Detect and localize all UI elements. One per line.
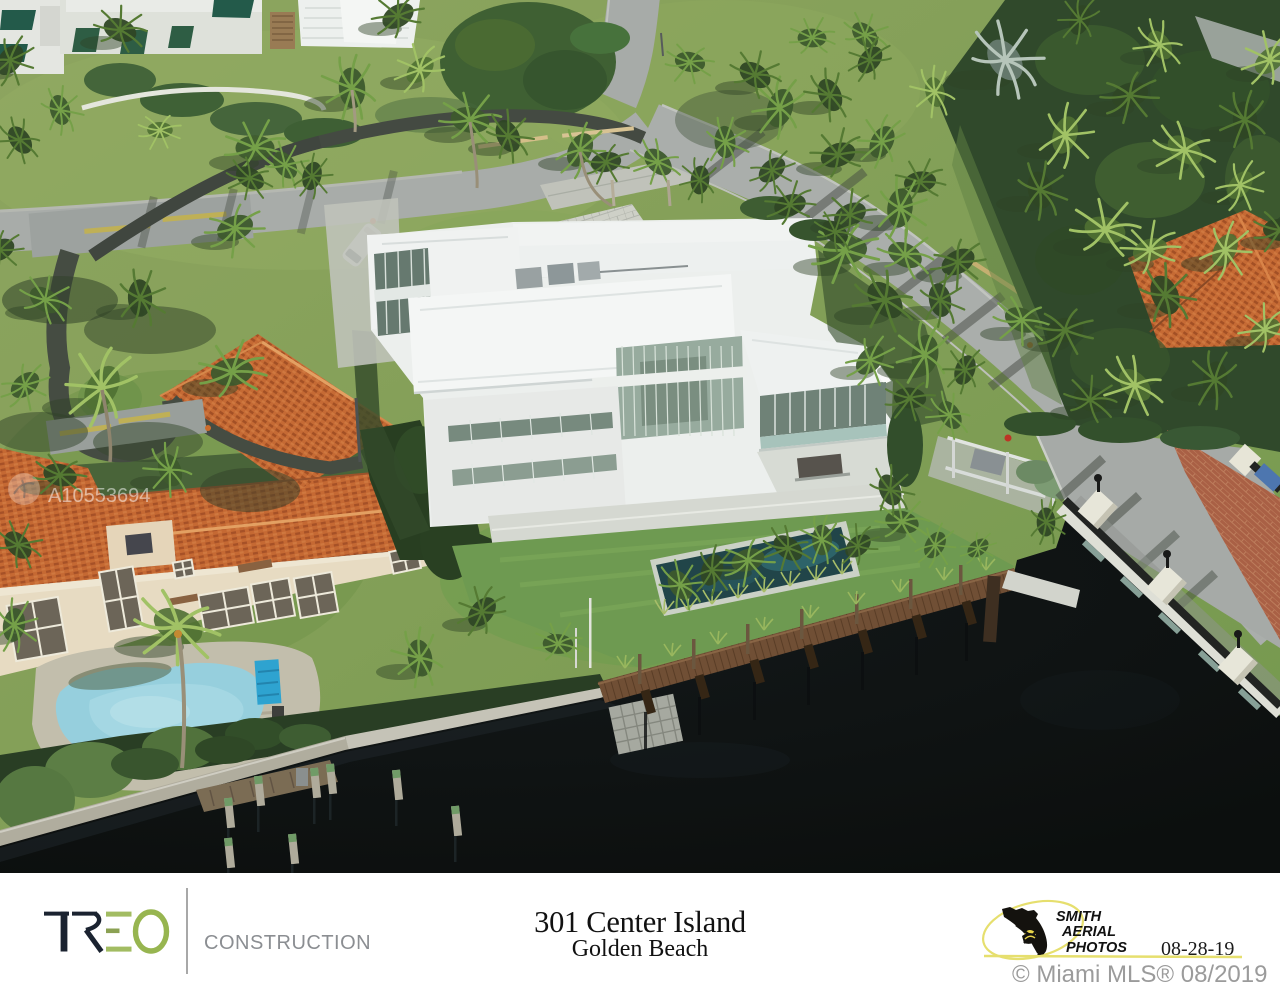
svg-text:PHOTOS: PHOTOS [1066,940,1127,956]
svg-text:AERIAL: AERIAL [1061,924,1116,940]
svg-text:A10553694: A10553694 [48,485,150,507]
svg-text:SMITH: SMITH [1056,909,1102,925]
